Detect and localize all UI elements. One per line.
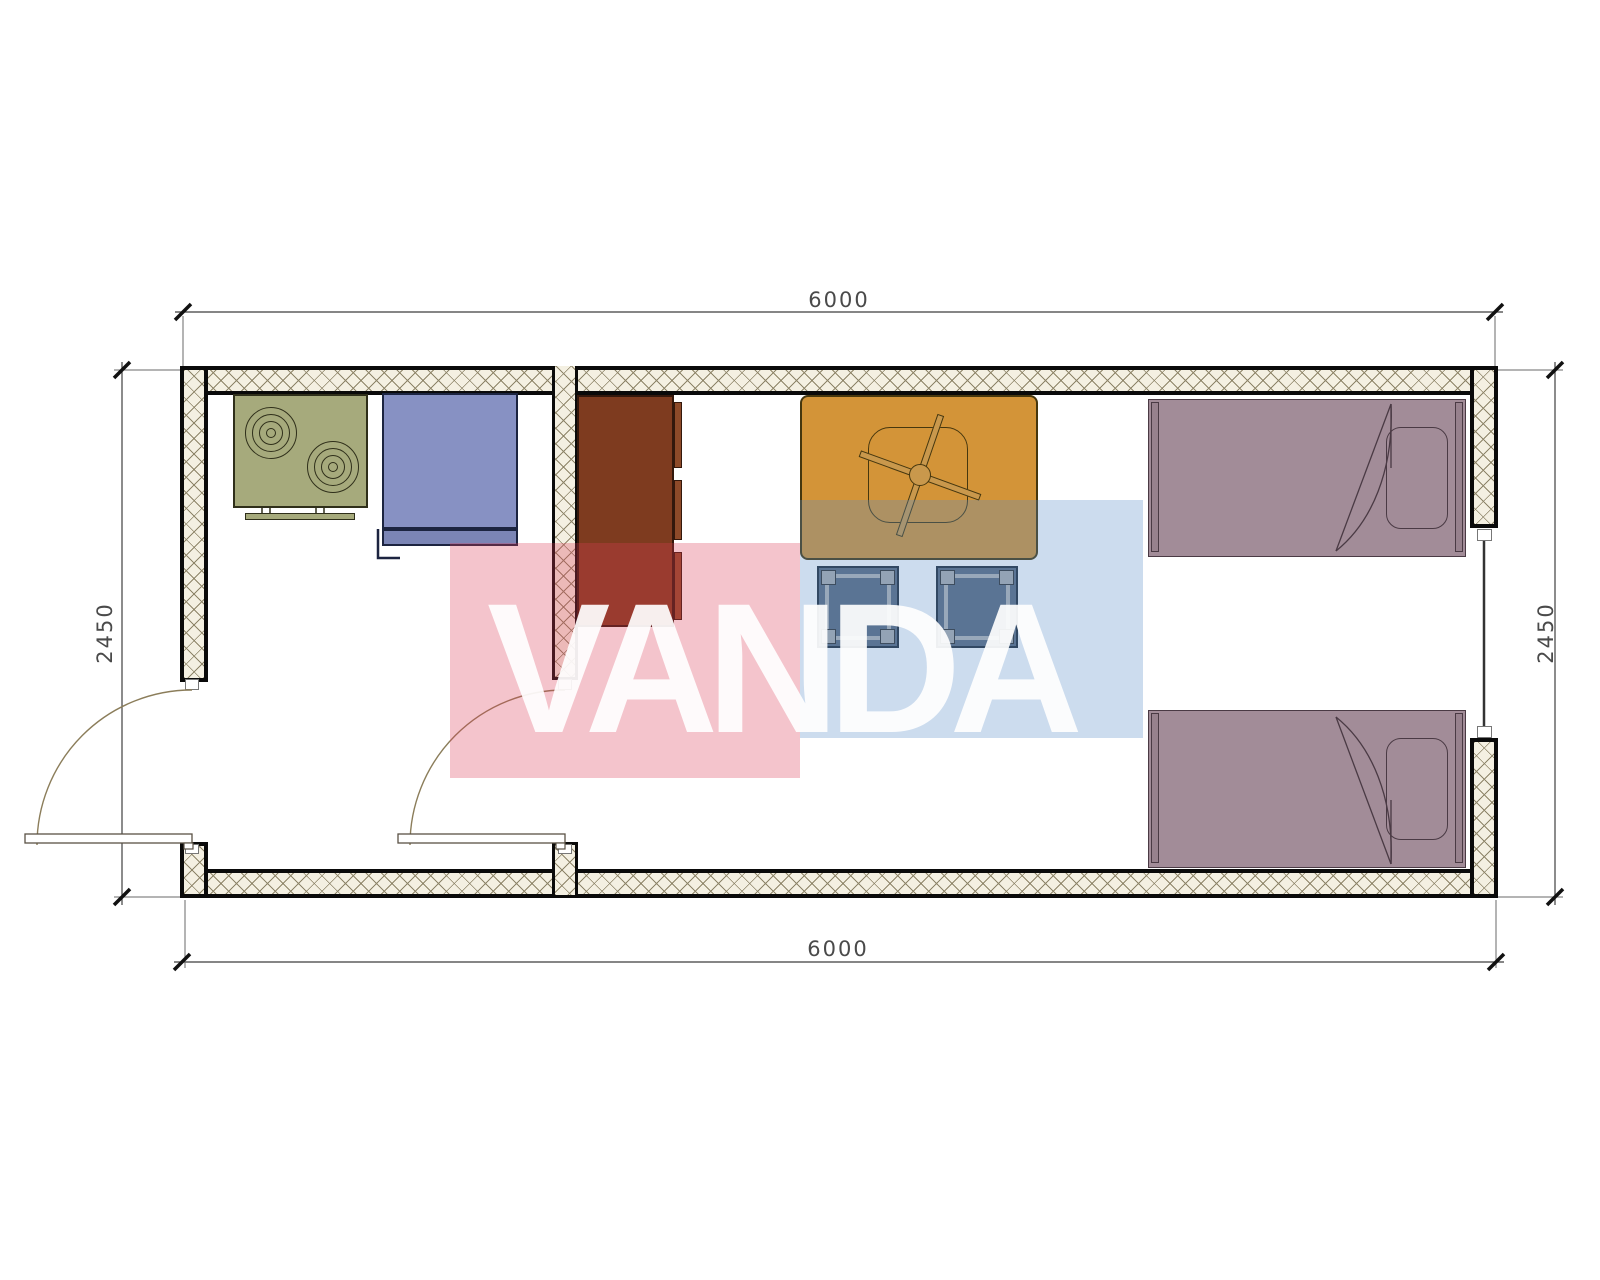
wall-left-upper xyxy=(180,366,208,682)
stove-icon xyxy=(233,394,368,508)
wardrobe-door-segment xyxy=(674,480,682,540)
bed-icon xyxy=(1148,710,1466,868)
fan-hub-icon xyxy=(909,464,931,486)
door2-jamb-bottom xyxy=(558,844,572,854)
watermark-text: VANDA xyxy=(487,577,1071,762)
wardrobe-door-segment xyxy=(674,402,682,468)
wall-top xyxy=(180,366,1498,395)
bed-icon xyxy=(1148,399,1466,557)
wall-right-upper xyxy=(1470,366,1498,528)
wall-bottom xyxy=(180,869,1498,898)
stove-base-bar xyxy=(245,513,355,520)
door1-jamb-bottom xyxy=(185,844,199,854)
dim-label-top: 6000 xyxy=(779,288,899,312)
window-jamb-bottom xyxy=(1477,726,1492,738)
floor-plan-canvas: 6000 6000 2450 2450 xyxy=(0,0,1600,1280)
door1-jamb-top xyxy=(185,679,199,690)
dim-label-left: 2450 xyxy=(93,583,117,683)
sink-unit-icon xyxy=(382,393,518,529)
wall-right-lower xyxy=(1470,738,1498,898)
window-jamb-top xyxy=(1477,529,1492,541)
dim-label-right: 2450 xyxy=(1534,583,1558,683)
dim-label-bottom: 6000 xyxy=(778,937,898,961)
